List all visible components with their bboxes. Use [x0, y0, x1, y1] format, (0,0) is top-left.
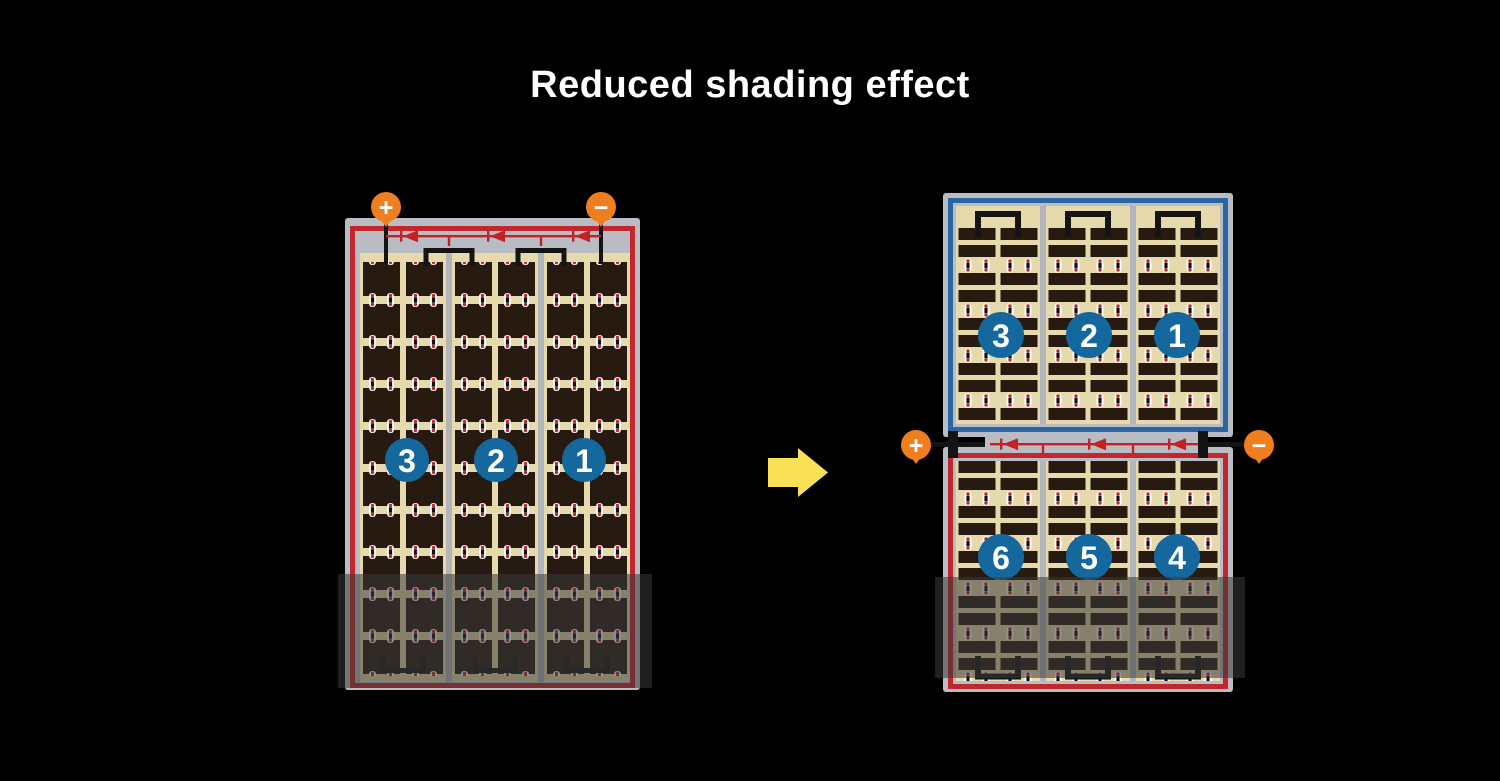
minus-terminal-icon: − [1244, 430, 1274, 464]
svg-text:3: 3 [398, 443, 416, 479]
svg-text:5: 5 [1080, 540, 1098, 576]
group-badge-1: 1 [1154, 312, 1200, 358]
group-badge-3: 3 [385, 438, 429, 482]
group-badge-6: 6 [978, 534, 1024, 580]
svg-text:−: − [1252, 432, 1267, 460]
svg-text:+: + [379, 194, 394, 222]
page-title: Reduced shading effect [0, 64, 1500, 107]
busbar [1130, 206, 1136, 424]
negative-lead-wire [1202, 442, 1244, 447]
left-panel-group-badges: 3 2 1 [385, 438, 606, 482]
split-module-diagram: 3 2 1 [885, 185, 1290, 710]
right-panel-top-half: 3 2 1 [943, 193, 1233, 437]
svg-text:+: + [909, 432, 924, 460]
group-badge-2: 2 [474, 438, 518, 482]
shading-overlay [338, 574, 652, 688]
svg-text:−: − [594, 194, 609, 222]
half-link-connector [1198, 431, 1208, 458]
svg-text:4: 4 [1168, 540, 1186, 576]
svg-text:6: 6 [992, 540, 1010, 576]
group-badge-3: 3 [978, 312, 1024, 358]
svg-text:2: 2 [1080, 318, 1098, 354]
half-link-connector [948, 431, 958, 458]
group-badge-1: 1 [562, 438, 606, 482]
svg-text:3: 3 [992, 318, 1010, 354]
shading-overlay [935, 577, 1245, 678]
busbar [1040, 206, 1046, 424]
svg-text:1: 1 [575, 443, 593, 479]
plus-terminal-icon: + [901, 430, 931, 464]
diagram-canvas: Reduced shading effect [0, 0, 1500, 781]
svg-text:2: 2 [487, 443, 505, 479]
svg-text:1: 1 [1168, 318, 1186, 354]
arrow-right-icon [760, 440, 840, 506]
group-badge-2: 2 [1066, 312, 1112, 358]
full-cell-module-diagram: 3 2 1 + − [330, 185, 670, 710]
group-badge-4: 4 [1154, 534, 1200, 580]
group-badge-5: 5 [1066, 534, 1112, 580]
